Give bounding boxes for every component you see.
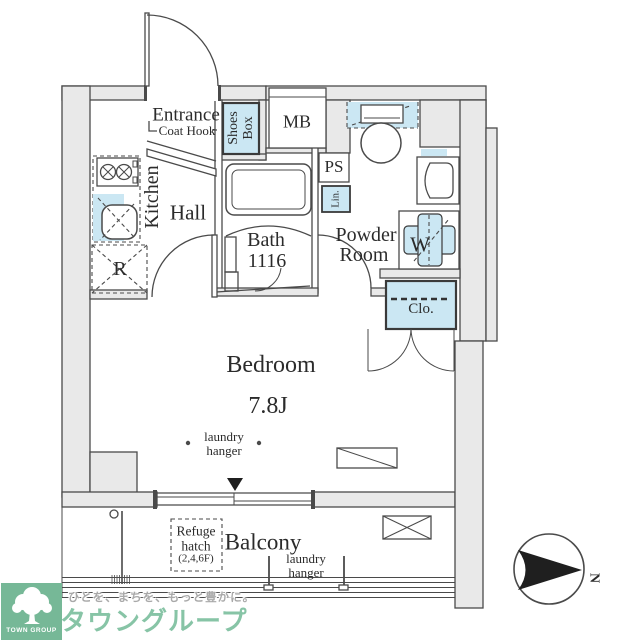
brand-company-name: タウングループ bbox=[60, 601, 247, 638]
laundry-hanger-label-balcony: laundry hanger bbox=[286, 552, 326, 580]
bedroom-label: Bedroom bbox=[226, 353, 315, 379]
bath-size-label: 1116 bbox=[248, 251, 287, 273]
fridge-label: R bbox=[113, 259, 126, 281]
ac-unit-space bbox=[337, 448, 397, 468]
stove-icon bbox=[97, 158, 138, 186]
mb-label: MB bbox=[283, 112, 311, 131]
bath-fixtures bbox=[216, 164, 311, 292]
door-jamb bbox=[144, 85, 147, 101]
shoes-box-label: Shoes Box bbox=[226, 111, 256, 144]
toilet-icon bbox=[347, 102, 418, 163]
bath-counter bbox=[225, 237, 236, 272]
door-jamb bbox=[218, 85, 221, 101]
closet-label: Clo. bbox=[408, 301, 433, 317]
laundry-hook-dot bbox=[186, 441, 190, 445]
outdoor-unit-space bbox=[383, 516, 431, 539]
town-group-logo: TOWN GROUP bbox=[1, 583, 62, 640]
coat-hook-label: Coat Hook bbox=[159, 124, 216, 138]
hall-door-icon bbox=[152, 235, 217, 297]
north-label: N bbox=[586, 573, 601, 583]
linen-label: Lin. bbox=[330, 190, 341, 207]
logo-caption: TOWN GROUP bbox=[6, 627, 56, 634]
hall-label: Hall bbox=[170, 202, 206, 225]
entrance-door-icon bbox=[145, 13, 218, 86]
laundry-hanger-label-bedroom: laundry hanger bbox=[204, 430, 244, 458]
refuge-hatch-label: Refuge hatch (2,4,6F) bbox=[177, 524, 216, 565]
bathtub-icon bbox=[226, 164, 311, 215]
powder-room-label: Room bbox=[340, 245, 389, 267]
window-triangle-marker bbox=[227, 478, 243, 491]
washbasin-icon bbox=[417, 149, 459, 204]
floorplan-drawing bbox=[0, 0, 640, 640]
bath-label: Bath bbox=[247, 230, 285, 252]
laundry-hook-dot bbox=[257, 441, 261, 445]
floorplan-page: Entrance Coat Hook Shoes Box MB PS Lin. … bbox=[0, 0, 640, 640]
closet-doors-icon bbox=[368, 329, 454, 371]
washer-label: W bbox=[410, 234, 430, 257]
sliding-window-icon bbox=[153, 490, 315, 509]
drain-pipe-icon bbox=[110, 510, 130, 584]
compass-icon bbox=[514, 534, 584, 604]
ps-label: PS bbox=[325, 158, 344, 176]
sink-icon bbox=[93, 194, 137, 241]
bedroom-size-label: 7.8J bbox=[248, 394, 287, 420]
kitchen-label: Kitchen bbox=[142, 165, 164, 228]
